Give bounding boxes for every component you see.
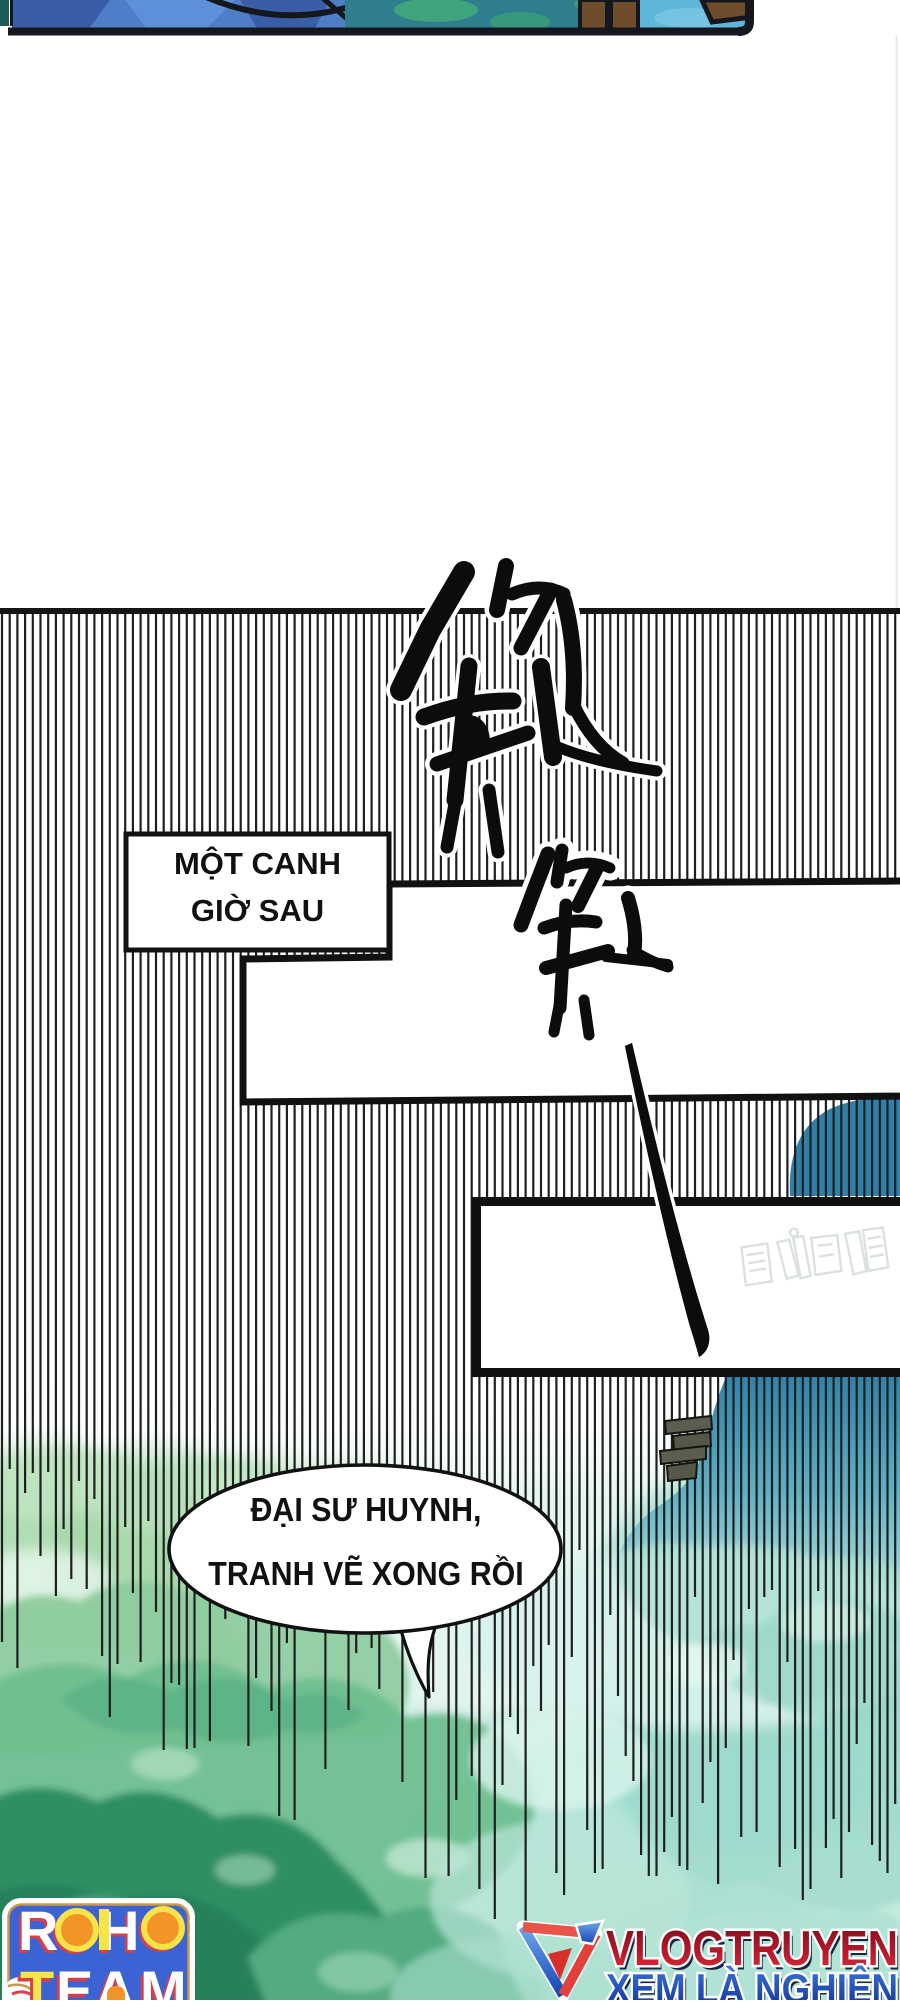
svg-text:M: M <box>140 1959 187 2000</box>
svg-text:R: R <box>18 1899 58 1962</box>
svg-text:T: T <box>20 1959 54 2000</box>
svg-text:E: E <box>56 1959 93 2000</box>
svg-text:XEM LÀ NGHIỆN: XEM LÀ NGHIỆN <box>606 1964 898 2000</box>
